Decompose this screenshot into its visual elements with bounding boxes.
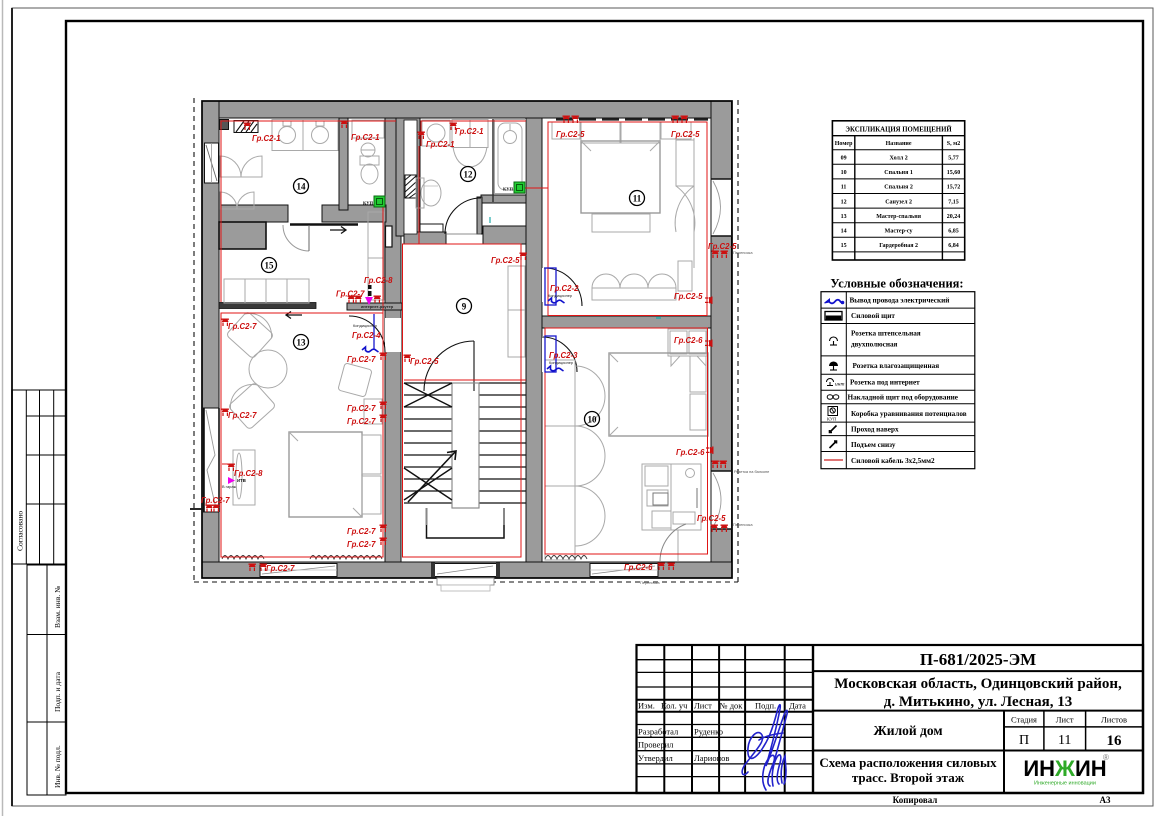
svg-text:Дата: Дата bbox=[789, 701, 806, 711]
svg-text:Разработал: Разработал bbox=[638, 727, 679, 737]
svg-text:14: 14 bbox=[297, 182, 307, 192]
svg-text:7,15: 7,15 bbox=[948, 199, 959, 205]
svg-text:Розетка на балконе: Розетка на балконе bbox=[734, 469, 769, 474]
svg-text:Утвердил: Утвердил bbox=[638, 753, 673, 763]
svg-text:15,60: 15,60 bbox=[947, 170, 961, 176]
svg-text:Кондиционер: Кондиционер bbox=[548, 293, 572, 298]
svg-text:Санузел 2: Санузел 2 bbox=[885, 199, 912, 205]
svg-text:11: 11 bbox=[1058, 733, 1071, 748]
svg-text:Гр.С2-7: Гр.С2-7 bbox=[228, 322, 257, 331]
svg-text:Гр.С2-5: Гр.С2-5 bbox=[674, 292, 703, 301]
svg-text:Розетка штепсельная: Розетка штепсельная bbox=[851, 330, 921, 338]
svg-text:Взам. инв. №: Взам. инв. № bbox=[53, 586, 62, 628]
svg-text:6,84: 6,84 bbox=[948, 243, 959, 249]
svg-text:14: 14 bbox=[841, 229, 847, 235]
svg-text:Московская область, Одинцовски: Московская область, Одинцовский район, bbox=[834, 676, 1122, 692]
svg-text:Название: Название bbox=[886, 141, 912, 147]
svg-text:S, м2: S, м2 bbox=[947, 141, 960, 147]
svg-text:Гр.С2-1: Гр.С2-1 bbox=[455, 127, 483, 136]
svg-text:Гр.С2-7: Гр.С2-7 bbox=[347, 527, 376, 536]
svg-text:Розетка под интернет: Розетка под интернет bbox=[850, 379, 920, 387]
svg-text:15: 15 bbox=[265, 261, 275, 271]
svg-text:ИТВ: ИТВ bbox=[237, 478, 246, 483]
svg-text:Жилой дом: Жилой дом bbox=[873, 723, 942, 738]
svg-text:КУП: КУП bbox=[363, 201, 373, 206]
svg-text:12: 12 bbox=[464, 170, 474, 180]
svg-text:Проверил: Проверил bbox=[638, 740, 674, 750]
svg-text:15: 15 bbox=[841, 243, 847, 249]
svg-text:Накладной щит под оборудование: Накладной щит под оборудование bbox=[848, 394, 959, 402]
svg-text:Лист: Лист bbox=[1056, 715, 1074, 725]
svg-text:Гр.С2-7: Гр.С2-7 bbox=[347, 404, 376, 413]
svg-text:ИНЖИН: ИНЖИН bbox=[1023, 756, 1106, 781]
svg-text:Силовой кабель 3х2,5мм2: Силовой кабель 3х2,5мм2 bbox=[851, 457, 935, 465]
svg-text:6,85: 6,85 bbox=[948, 229, 959, 235]
svg-text:Изм.: Изм. bbox=[638, 701, 655, 711]
svg-text:Схема расположения силовых: Схема расположения силовых bbox=[819, 755, 997, 770]
svg-text:Проход наверх: Проход наверх bbox=[851, 426, 899, 434]
svg-text:Руденко: Руденко bbox=[694, 727, 723, 737]
svg-text:Гр.С2-7: Гр.С2-7 bbox=[228, 411, 257, 420]
svg-text:инт: инт bbox=[835, 382, 844, 388]
svg-text:Номер: Номер bbox=[835, 141, 853, 147]
svg-text:Гр.С2-6: Гр.С2-6 bbox=[676, 448, 705, 457]
svg-text:20,24: 20,24 bbox=[947, 214, 961, 220]
svg-text:13: 13 bbox=[841, 214, 847, 220]
svg-text:12: 12 bbox=[841, 199, 847, 205]
svg-text:Спальня 1: Спальня 1 bbox=[884, 170, 913, 176]
svg-text:15,72: 15,72 bbox=[947, 185, 961, 191]
svg-text:П: П bbox=[1019, 733, 1029, 748]
svg-text:Вывод провода электрический: Вывод провода электрический bbox=[850, 297, 950, 305]
svg-text:П-681/2025-ЭМ: П-681/2025-ЭМ bbox=[920, 650, 1036, 669]
svg-text:Силовой щит: Силовой щит bbox=[851, 312, 895, 320]
svg-text:В гараж: В гараж bbox=[222, 484, 237, 489]
svg-text:Гр.С2-8: Гр.С2-8 bbox=[234, 469, 263, 478]
svg-text:Гр.С2-5: Гр.С2-5 bbox=[410, 357, 439, 366]
svg-text:Гр.С2-7: Гр.С2-7 bbox=[336, 290, 365, 299]
svg-text:Лист: Лист bbox=[694, 701, 712, 711]
svg-text:Кондиционер: Кондиционер bbox=[353, 323, 377, 328]
svg-text:Гр.С2-1: Гр.С2-1 bbox=[252, 134, 280, 143]
svg-text:двухполюсная: двухполюсная bbox=[851, 341, 898, 349]
svg-text:Гр.С2-1: Гр.С2-1 bbox=[426, 140, 454, 149]
svg-text:Спальня 2: Спальня 2 bbox=[884, 185, 913, 191]
svg-text:ЭКСПЛИКАЦИЯ ПОМЕЩЕНИЙ: ЭКСПЛИКАЦИЯ ПОМЕЩЕНИЙ bbox=[845, 126, 952, 134]
svg-text:Розетка влагозащищенная: Розетка влагозащищенная bbox=[853, 362, 940, 370]
svg-text:интернет-роутер: интернет-роутер bbox=[361, 304, 394, 309]
svg-text:Гр.С2-7: Гр.С2-7 bbox=[347, 540, 376, 549]
svg-text:Инженерные инновации: Инженерные инновации bbox=[1034, 781, 1096, 787]
svg-text:Стадия: Стадия bbox=[1011, 715, 1037, 725]
svg-text:Мастер-спальня: Мастер-спальня bbox=[876, 214, 921, 220]
svg-text:Гр.С2-7: Гр.С2-7 bbox=[201, 496, 230, 505]
svg-text:трасс. Второй этаж: трасс. Второй этаж bbox=[852, 770, 965, 785]
svg-text:10: 10 bbox=[588, 415, 598, 425]
svg-text:Листов: Листов bbox=[1101, 715, 1127, 725]
svg-text:Подп.: Подп. bbox=[755, 701, 776, 711]
svg-text:№ док: № док bbox=[720, 701, 744, 711]
svg-text:10: 10 bbox=[841, 170, 847, 176]
svg-text:д. Митькино, ул. Лесная, 13: д. Митькино, ул. Лесная, 13 bbox=[884, 694, 1073, 710]
svg-text:КУП: КУП bbox=[827, 417, 837, 422]
svg-text:Гр.С2-5: Гр.С2-5 bbox=[671, 130, 700, 139]
svg-text:Переноска: Переноска bbox=[733, 522, 753, 527]
svg-text:11: 11 bbox=[633, 194, 642, 204]
svg-text:Кол. уч: Кол. уч bbox=[661, 701, 688, 711]
svg-text:А3: А3 bbox=[1100, 795, 1111, 805]
svg-text:Коробка уравнивания потенциало: Коробка уравнивания потенциалов bbox=[851, 410, 967, 418]
svg-text:Гр.С2-2: Гр.С2-2 bbox=[550, 284, 579, 293]
svg-text:Согласовано: Согласовано bbox=[16, 511, 25, 551]
svg-text:Гардеробная 2: Гардеробная 2 bbox=[879, 242, 918, 249]
svg-text:9: 9 bbox=[462, 302, 467, 312]
svg-text:Гр.С2-5: Гр.С2-5 bbox=[697, 514, 726, 523]
svg-text:Кондиционер: Кондиционер bbox=[549, 360, 573, 365]
svg-text:Гр.С2-5: Гр.С2-5 bbox=[556, 130, 585, 139]
svg-text:11: 11 bbox=[841, 185, 847, 191]
svg-text:Инв. № подл.: Инв. № подл. bbox=[53, 745, 62, 788]
svg-text:09: 09 bbox=[841, 156, 847, 162]
svg-text:16: 16 bbox=[1107, 733, 1123, 749]
svg-text:Гр.С2-7: Гр.С2-7 bbox=[266, 564, 295, 573]
svg-text:Гр.С2-1: Гр.С2-1 bbox=[351, 133, 379, 142]
svg-text:13: 13 bbox=[297, 338, 307, 348]
svg-text:Ларионов: Ларионов bbox=[694, 753, 729, 763]
svg-text:Мастер-су: Мастер-су bbox=[885, 229, 913, 235]
svg-text:®: ® bbox=[1103, 753, 1109, 762]
svg-text:Гр.С2-7: Гр.С2-7 bbox=[347, 417, 376, 426]
svg-text:Гр.С2-5: Гр.С2-5 bbox=[491, 256, 520, 265]
svg-text:5,77: 5,77 bbox=[948, 156, 959, 162]
svg-text:Подъем снизу: Подъем снизу bbox=[851, 441, 896, 449]
svg-text:Подп. и дата: Подп. и дата bbox=[53, 671, 62, 712]
svg-text:Переноска: Переноска bbox=[733, 250, 753, 255]
svg-text:Холл 2: Холл 2 bbox=[889, 156, 907, 162]
svg-text:Переноска: Переноска bbox=[640, 580, 660, 585]
svg-text:Гр.С2-6: Гр.С2-6 bbox=[624, 563, 653, 572]
svg-text:Гр.С2-7: Гр.С2-7 bbox=[347, 355, 376, 364]
svg-text:Гр.С2-6: Гр.С2-6 bbox=[674, 336, 703, 345]
svg-text:Гр.С2-4: Гр.С2-4 bbox=[352, 331, 381, 340]
svg-text:Гр.С2-3: Гр.С2-3 bbox=[549, 351, 578, 360]
svg-text:Условные обозначения:: Условные обозначения: bbox=[830, 277, 963, 291]
svg-text:Гр.С2-8: Гр.С2-8 bbox=[364, 276, 393, 285]
svg-text:Копировал: Копировал bbox=[893, 795, 938, 805]
svg-text:КУП: КУП bbox=[503, 187, 513, 192]
